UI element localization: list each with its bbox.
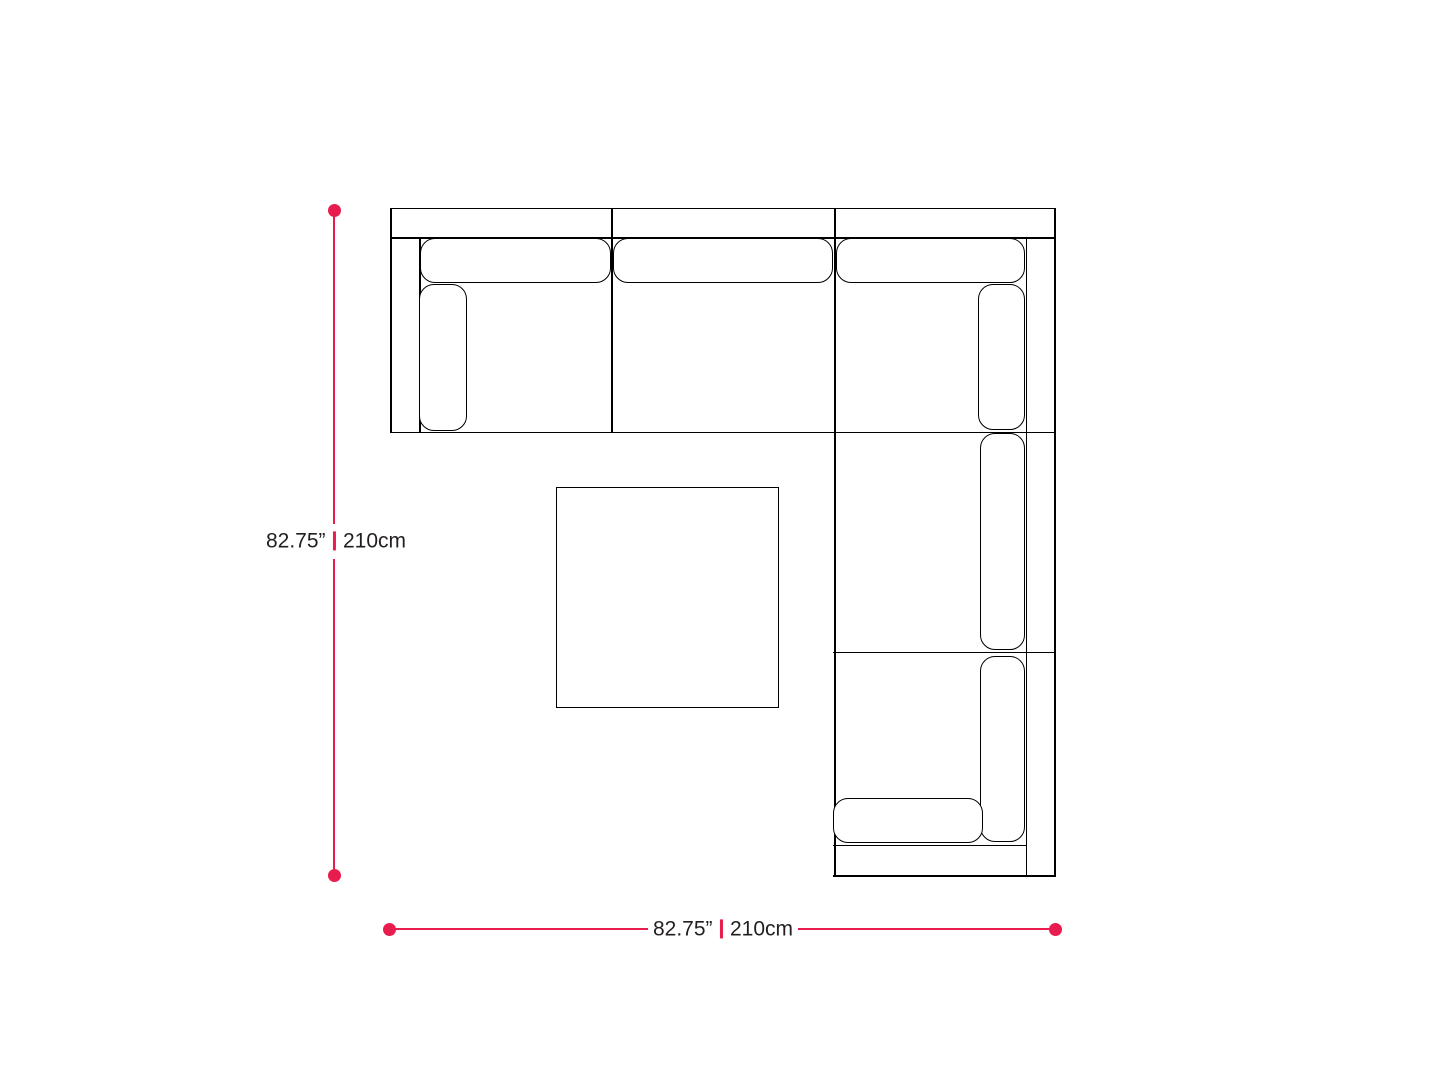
width-dimension-label: 82.75” 210cm <box>653 916 793 941</box>
height-dimension-endpoint-bottom <box>328 869 341 882</box>
ottoman-table <box>556 487 779 708</box>
width-dimension-line-right <box>798 928 1055 930</box>
right-back-cushion-bottom <box>980 656 1025 842</box>
width-label-cm: 210cm <box>730 916 793 941</box>
back-cushion-right <box>836 238 1025 283</box>
back-cushion-left <box>420 238 611 283</box>
arm-cushion-left <box>419 284 467 431</box>
height-dimension-line-upper <box>333 210 335 524</box>
width-label-separator <box>720 920 724 939</box>
right-back-cushion-middle <box>980 433 1025 650</box>
sofa-right-edge <box>1054 208 1056 877</box>
right-backrest-inner-edge <box>1026 237 1028 876</box>
back-cushion-center <box>613 238 833 283</box>
sofa-top-edge <box>390 208 1055 210</box>
height-dimension-line-lower <box>333 559 335 875</box>
width-label-inches: 82.75” <box>653 916 713 941</box>
seat-divider-corner <box>834 208 836 877</box>
width-dimension-line-left <box>389 928 648 930</box>
bottom-armrest-inner-edge <box>833 845 1026 847</box>
height-label-inches: 82.75” <box>266 528 326 553</box>
height-label-cm: 210cm <box>343 528 406 553</box>
diagram-canvas: 82.75” 210cm 82.75” 210cm <box>0 0 1445 1084</box>
right-section-divider <box>833 652 1055 654</box>
sofa-left-edge <box>390 208 392 433</box>
height-dimension-label: 82.75” 210cm <box>266 528 406 553</box>
seat-divider-left <box>611 208 613 433</box>
height-label-separator <box>333 532 337 551</box>
arm-cushion-bottom <box>833 798 983 843</box>
width-dimension-endpoint-right <box>1049 923 1062 936</box>
corner-back-cushion <box>978 284 1025 430</box>
sofa-seat-front-edge <box>390 432 1055 434</box>
sofa-bottom-edge <box>833 875 1055 877</box>
